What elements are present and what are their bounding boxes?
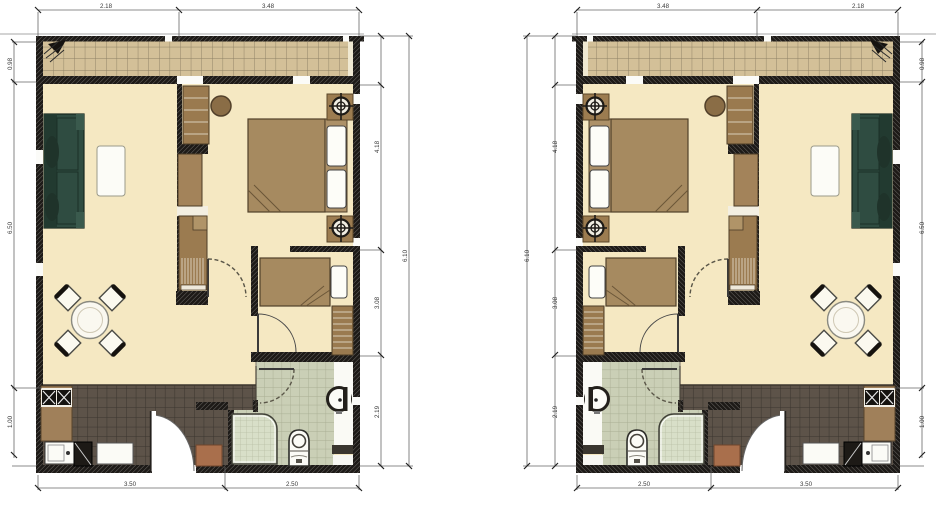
svg-text:2.18: 2.18 [852, 3, 865, 10]
svg-text:4.18: 4.18 [374, 140, 381, 153]
svg-text:4.18: 4.18 [552, 140, 559, 153]
svg-text:0.98: 0.98 [919, 57, 926, 70]
svg-text:2.50: 2.50 [638, 481, 651, 488]
svg-text:2.19: 2.19 [552, 405, 559, 418]
svg-text:6.50: 6.50 [7, 221, 14, 234]
svg-text:6.50: 6.50 [919, 221, 926, 234]
svg-text:3.08: 3.08 [374, 296, 381, 309]
svg-text:2.19: 2.19 [374, 405, 381, 418]
svg-text:1.00: 1.00 [919, 415, 926, 428]
svg-text:2.50: 2.50 [286, 481, 299, 488]
svg-text:6.10: 6.10 [402, 249, 409, 262]
svg-text:3.48: 3.48 [657, 3, 670, 10]
svg-text:2.18: 2.18 [100, 3, 113, 10]
svg-text:1.00: 1.00 [7, 415, 14, 428]
svg-text:0.98: 0.98 [7, 57, 14, 70]
svg-text:3.48: 3.48 [262, 3, 275, 10]
svg-text:6.10: 6.10 [524, 249, 531, 262]
svg-text:3.08: 3.08 [552, 296, 559, 309]
svg-text:3.50: 3.50 [124, 481, 137, 488]
svg-text:3.50: 3.50 [800, 481, 813, 488]
